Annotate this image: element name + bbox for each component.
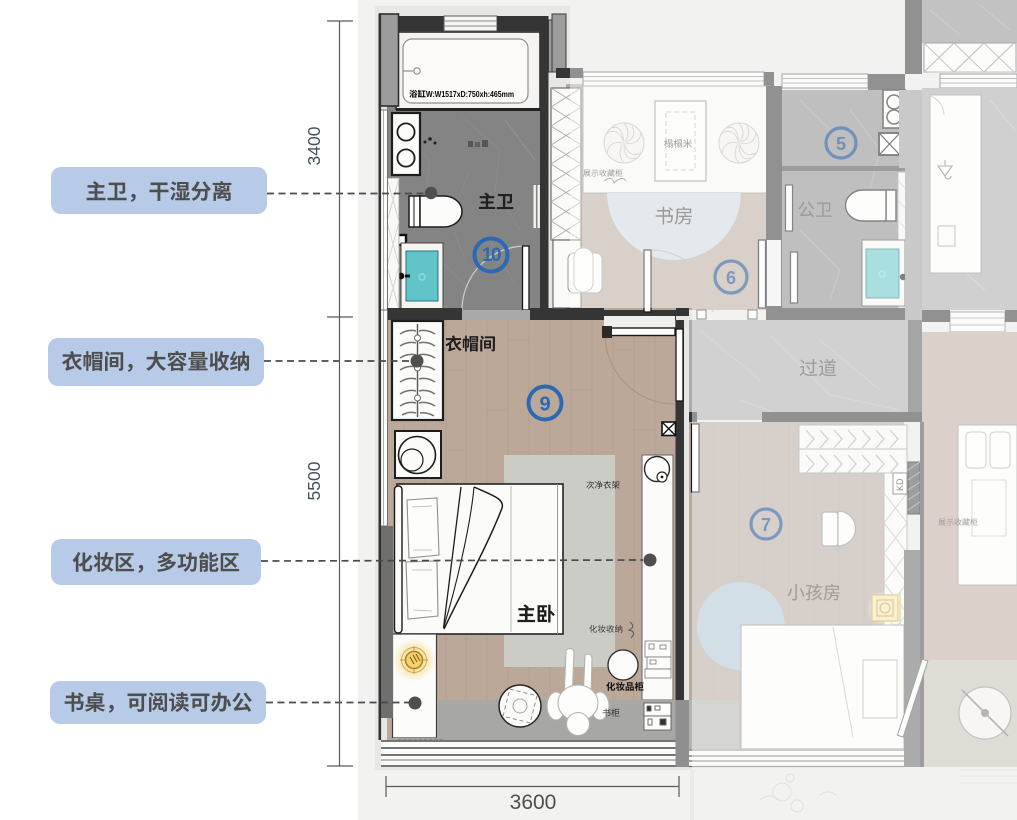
svg-text:7: 7	[761, 515, 771, 535]
svg-text:3400: 3400	[304, 126, 324, 165]
svg-text:5: 5	[836, 134, 846, 154]
svg-text:9: 9	[539, 394, 550, 416]
svg-text:3600: 3600	[510, 791, 557, 814]
svg-text:W:W1517xD:750xh:465mm: W:W1517xD:750xh:465mm	[426, 90, 514, 99]
svg-text:5500: 5500	[304, 461, 324, 500]
svg-text:10: 10	[482, 245, 501, 266]
svg-text:6: 6	[726, 268, 736, 288]
